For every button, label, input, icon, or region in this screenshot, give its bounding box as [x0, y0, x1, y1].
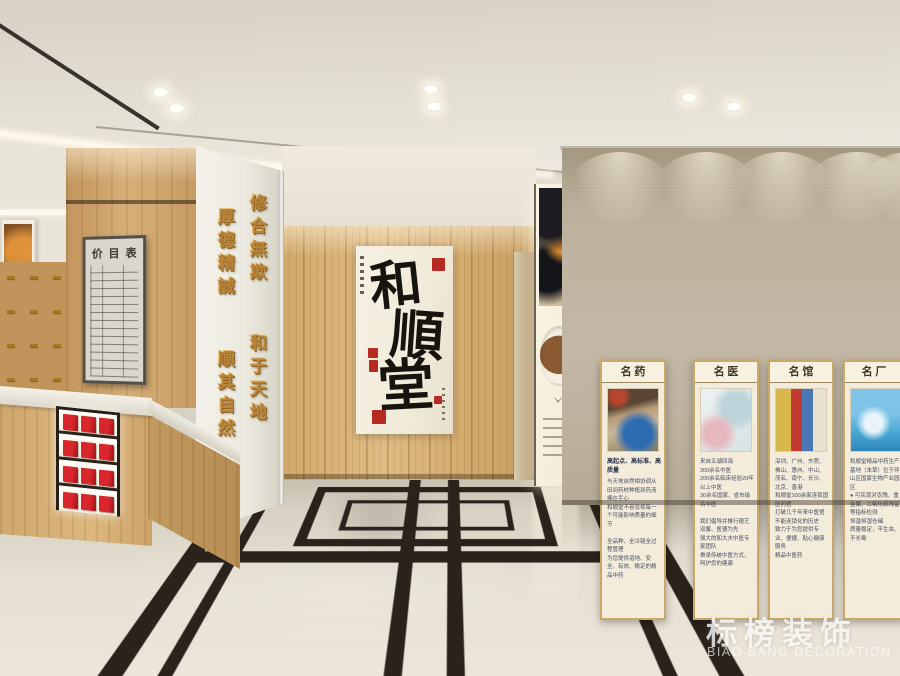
red-seal [369, 360, 378, 372]
left-wood-wall: 价目表 [66, 148, 202, 408]
ceiling-slot [0, 18, 160, 130]
gold-characters-left-bottom: 順其自然 [212, 350, 237, 442]
panel-heading: 高起点、高标准、高质量 [607, 458, 661, 476]
price-list-board: 价目表 [83, 235, 147, 385]
panel-body-text: 与天地自然相协调从田间药材种植到药汤捧在手心 和顺堂不容忽视每一个可能影响质量的… [607, 478, 661, 616]
panel-photo [775, 388, 827, 452]
gold-characters-right-top: 修合無欺 [244, 194, 269, 286]
wall-base-shadow [562, 500, 900, 505]
red-seal [372, 410, 386, 424]
downlight [681, 92, 697, 103]
downlight [426, 101, 442, 112]
wall-panel-famous-medicine: 名 药 高起点、高标准、高质量 与天地自然相协调从田间药材种植到药汤捧在手心 和… [600, 360, 666, 620]
watermark-english: BIAO BANG DECORATION [707, 645, 897, 659]
panel-photo [700, 388, 752, 452]
panel-title: 名 药 [602, 362, 664, 383]
gold-characters-right-bottom: 和于天地 [244, 334, 269, 426]
panel-title: 名 医 [695, 362, 757, 383]
panel-photo [607, 388, 659, 452]
wall-seam [66, 200, 202, 204]
panel-title: 名 厂 [845, 362, 900, 383]
price-board-title: 价目表 [86, 244, 144, 261]
downlight [726, 101, 742, 112]
partition-wall: 修合無欺 和于天地 厚德精誠 順其自然 [196, 146, 284, 534]
red-product-box [99, 444, 114, 462]
scroll-side-inscription [442, 386, 445, 420]
downlight [168, 103, 185, 114]
calligraphy-scroll: 和 順 堂 [356, 246, 453, 434]
wall-panel-famous-doctors: 名 医 来自五湖四海 300余名中医 200余名临床经验20年以上中医 30余名… [693, 360, 759, 620]
wall-glow [66, 148, 202, 182]
price-board-rows [90, 265, 138, 378]
panel-title: 名 馆 [770, 362, 832, 383]
panel-body-text: 深圳、广州、东莞、佛山、惠州、中山、茂名、南宁、长沙、北京、香港 和顺堂100余… [775, 458, 829, 616]
scroll-side-inscription [360, 254, 364, 294]
red-seal [434, 396, 442, 404]
downlight [152, 87, 169, 98]
calligraphy-char-3: 堂 [377, 357, 436, 416]
right-feature-wall: 名 药 高起点、高标准、高质量 与天地自然相协调从田间药材种植到药汤捧在手心 和… [562, 148, 900, 505]
panel-body-text: 和顺堂精品中药生产基地（本草）位于坪山区国家生物产业园区 ● 可实现对农残、重金… [850, 458, 900, 616]
interior-render: 价目表 和 順 堂 修合無欺 和于天地 厚德精誠 順其自然 [0, 0, 900, 676]
wall-panel-famous-halls: 名 馆 深圳、广州、东莞、佛山、惠州、中山、茂名、南宁、长沙、北京、香港 和顺堂… [768, 360, 834, 620]
partition-lit-edge [280, 156, 283, 512]
floor-gloss [120, 536, 620, 656]
gold-characters-left-top: 厚德精誠 [212, 208, 237, 300]
red-seal [432, 258, 445, 271]
red-seal [368, 348, 378, 358]
red-product-box [99, 418, 114, 436]
panel-body-text: 来自五湖四海 300余名中医 200余名临床经验20年以上中医 30余名国家、省… [700, 458, 754, 616]
wall-panel-famous-factory: 名 厂 和顺堂精品中药生产基地（本草）位于坪山区国家生物产业园区 ● 可实现对农… [843, 360, 900, 620]
wall-base-shadow [282, 474, 536, 479]
panel-photo [850, 388, 900, 452]
medicine-drawer-cabinet [0, 262, 70, 412]
downlight [423, 84, 439, 95]
